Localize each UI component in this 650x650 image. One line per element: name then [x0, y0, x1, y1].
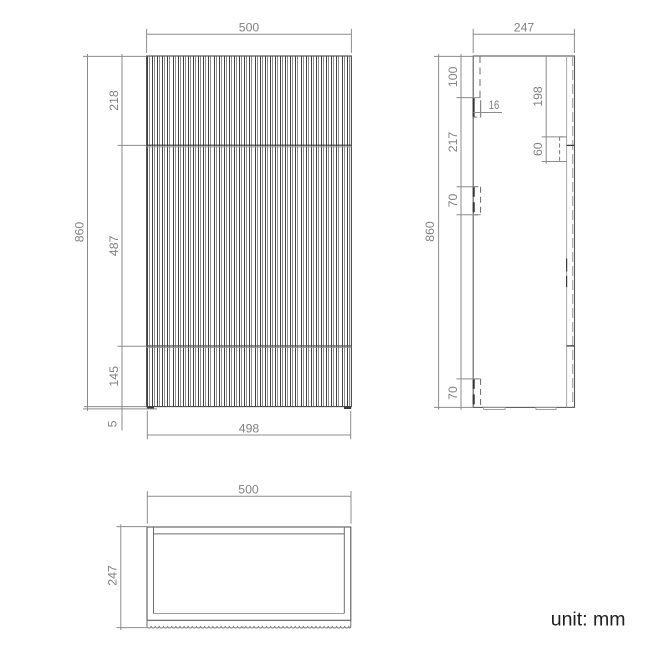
svg-text:860: 860 [73, 222, 87, 243]
svg-text:60: 60 [531, 142, 545, 156]
svg-text:16: 16 [489, 98, 500, 112]
svg-text:500: 500 [238, 483, 259, 497]
svg-text:100: 100 [446, 66, 460, 87]
svg-text:70: 70 [446, 194, 460, 208]
svg-text:500: 500 [239, 21, 260, 35]
svg-text:247: 247 [514, 21, 535, 35]
svg-text:70: 70 [446, 386, 460, 400]
svg-text:217: 217 [446, 132, 460, 153]
svg-text:247: 247 [106, 565, 120, 586]
svg-text:218: 218 [107, 90, 121, 111]
svg-text:5: 5 [106, 420, 120, 427]
svg-text:145: 145 [107, 366, 121, 387]
svg-text:198: 198 [531, 86, 545, 107]
svg-text:unit: mm: unit: mm [551, 609, 626, 631]
svg-text:487: 487 [107, 235, 121, 256]
svg-text:860: 860 [423, 221, 437, 242]
svg-text:498: 498 [239, 421, 260, 435]
